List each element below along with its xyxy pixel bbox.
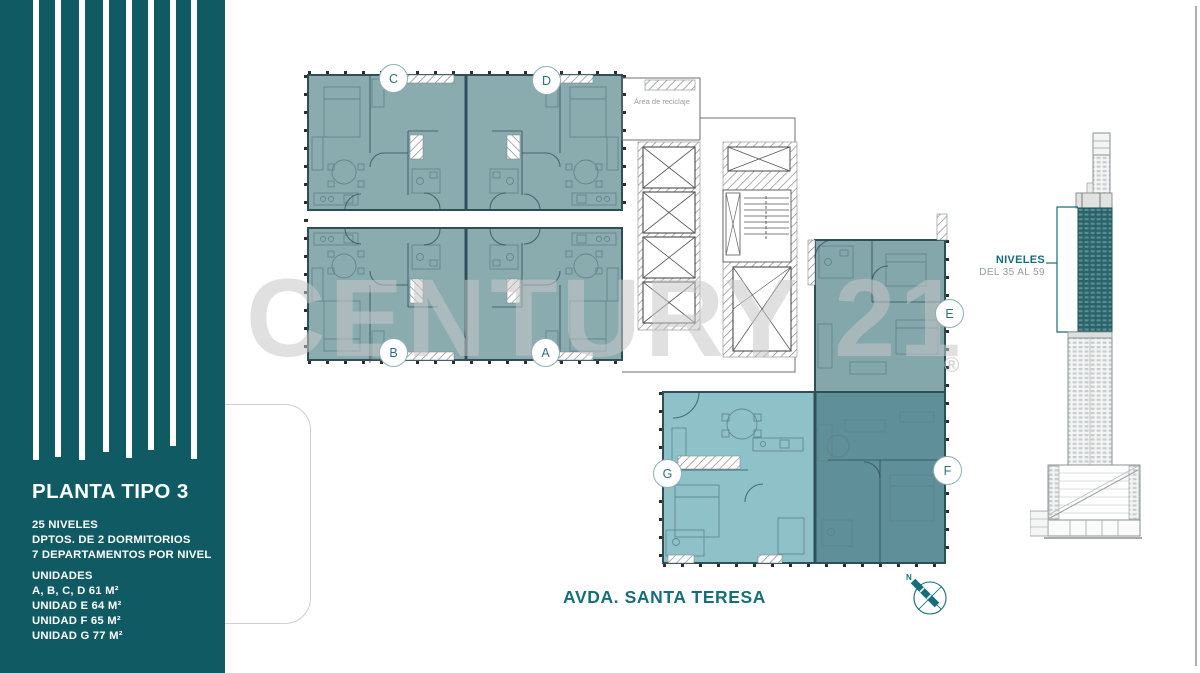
spec-dormitorios: DPTOS. DE 2 DORMITORIOS <box>32 533 222 548</box>
watermark-text: CENTURY 21 <box>246 264 965 374</box>
unit-circle-c: C <box>379 64 408 93</box>
unidad-abcd: A, B, C, D 61 M² <box>32 584 222 599</box>
unit-f-area <box>815 392 945 563</box>
brand-stripe <box>126 0 132 458</box>
recycle-area-label: Área de reciclaje <box>634 97 690 106</box>
plan-title: PLANTA TIPO 3 <box>32 480 222 504</box>
unidad-g: UNIDAD G 77 M² <box>32 629 222 644</box>
building-elevation <box>1030 125 1145 545</box>
registered-icon: ® <box>944 354 959 378</box>
spec-niveles: 25 NIVELES <box>32 518 222 533</box>
unit-circle-a: A <box>531 338 560 367</box>
street-label: AVDA. SANTA TERESA <box>563 587 766 608</box>
niveles-callout: NIVELES DEL 35 AL 59 <box>973 254 1045 278</box>
north-compass-icon: N <box>903 571 957 625</box>
unidades-heading: UNIDADES <box>32 569 222 584</box>
brand-stripe <box>148 0 154 450</box>
unit-circle-d: D <box>532 66 561 95</box>
niveles-label: NIVELES <box>973 254 1045 266</box>
brand-stripe <box>103 0 109 452</box>
spec-departamentos: 7 DEPARTAMENTOS POR NIVEL <box>32 548 222 563</box>
page-right-border <box>1195 6 1197 666</box>
unidad-e: UNIDAD E 64 M² <box>32 599 222 614</box>
left-brand-panel: PLANTA TIPO 3 25 NIVELES DPTOS. DE 2 DOR… <box>0 0 225 673</box>
unit-circle-f: F <box>933 456 962 485</box>
unit-circle-b: B <box>379 338 408 367</box>
floorplan-sheet: PLANTA TIPO 3 25 NIVELES DPTOS. DE 2 DOR… <box>0 0 1200 673</box>
unidad-f: UNIDAD F 65 M² <box>32 614 222 629</box>
brand-stripe <box>33 0 39 460</box>
unit-g-area <box>663 392 815 563</box>
unit-circle-e: E <box>935 299 964 328</box>
compass-north-label: N <box>906 573 912 582</box>
niveles-range: DEL 35 AL 59 <box>973 267 1045 278</box>
brand-stripe <box>79 0 85 460</box>
unit-circle-g: G <box>653 459 682 488</box>
brand-stripe <box>55 0 61 457</box>
brand-stripe <box>191 0 197 459</box>
brand-stripe <box>170 0 176 446</box>
